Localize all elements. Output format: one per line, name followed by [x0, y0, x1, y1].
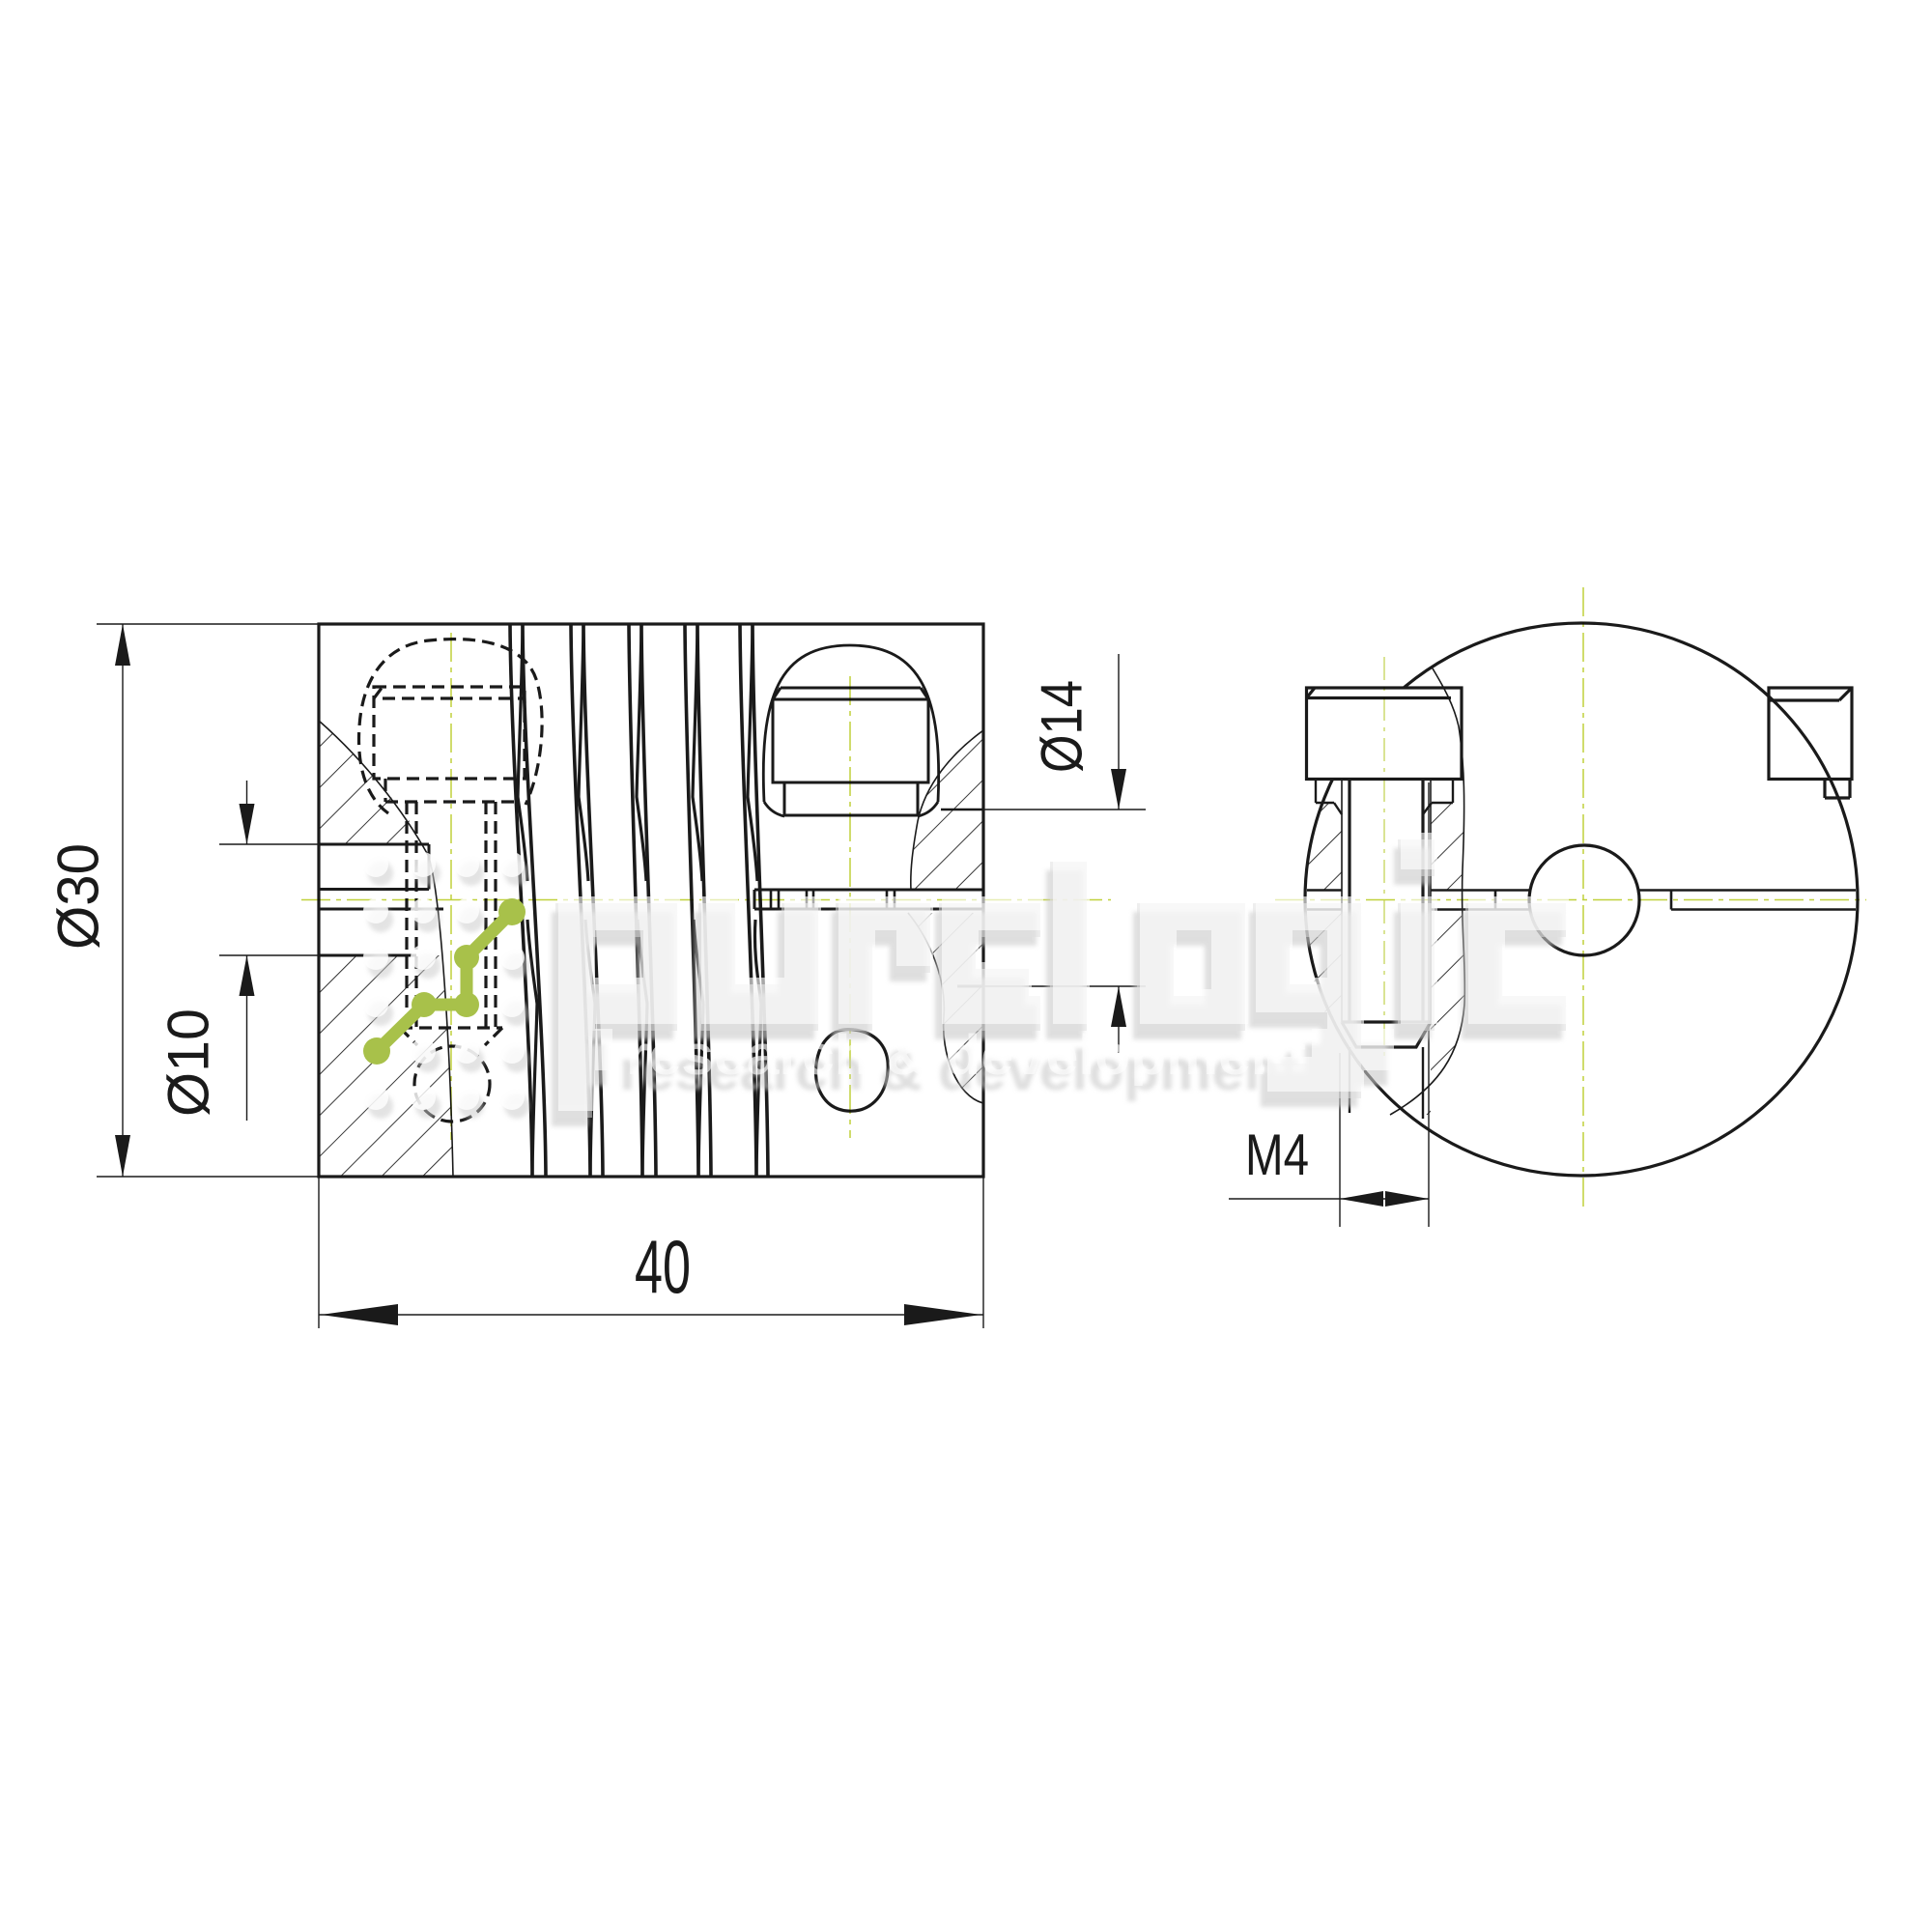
svg-text:research & development: research & development — [626, 1024, 1306, 1087]
svg-text:40: 40 — [635, 1224, 691, 1309]
svg-text:M4: M4 — [1245, 1122, 1309, 1187]
svg-text:Ø10: Ø10 — [156, 1009, 221, 1117]
svg-text:Ø30: Ø30 — [46, 843, 111, 950]
svg-text:Ø14: Ø14 — [1030, 680, 1094, 773]
